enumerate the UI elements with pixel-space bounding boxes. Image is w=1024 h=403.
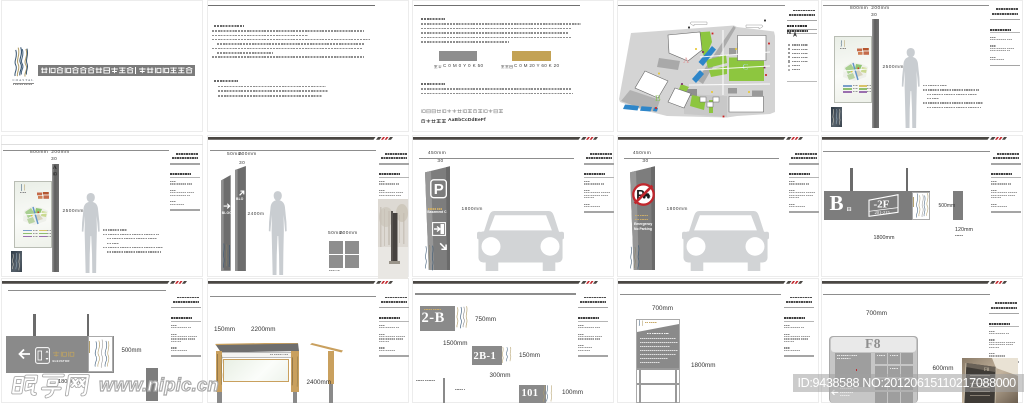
svg-text:-2F: -2F bbox=[873, 198, 889, 210]
svg-text:P: P bbox=[433, 181, 443, 198]
svg-text:C: C bbox=[743, 62, 749, 72]
svg-text:201-215: 201-215 bbox=[874, 210, 890, 215]
svg-text:B: B bbox=[655, 93, 661, 103]
svg-text:A: A bbox=[683, 55, 690, 65]
svg-text:F8: F8 bbox=[984, 368, 990, 373]
